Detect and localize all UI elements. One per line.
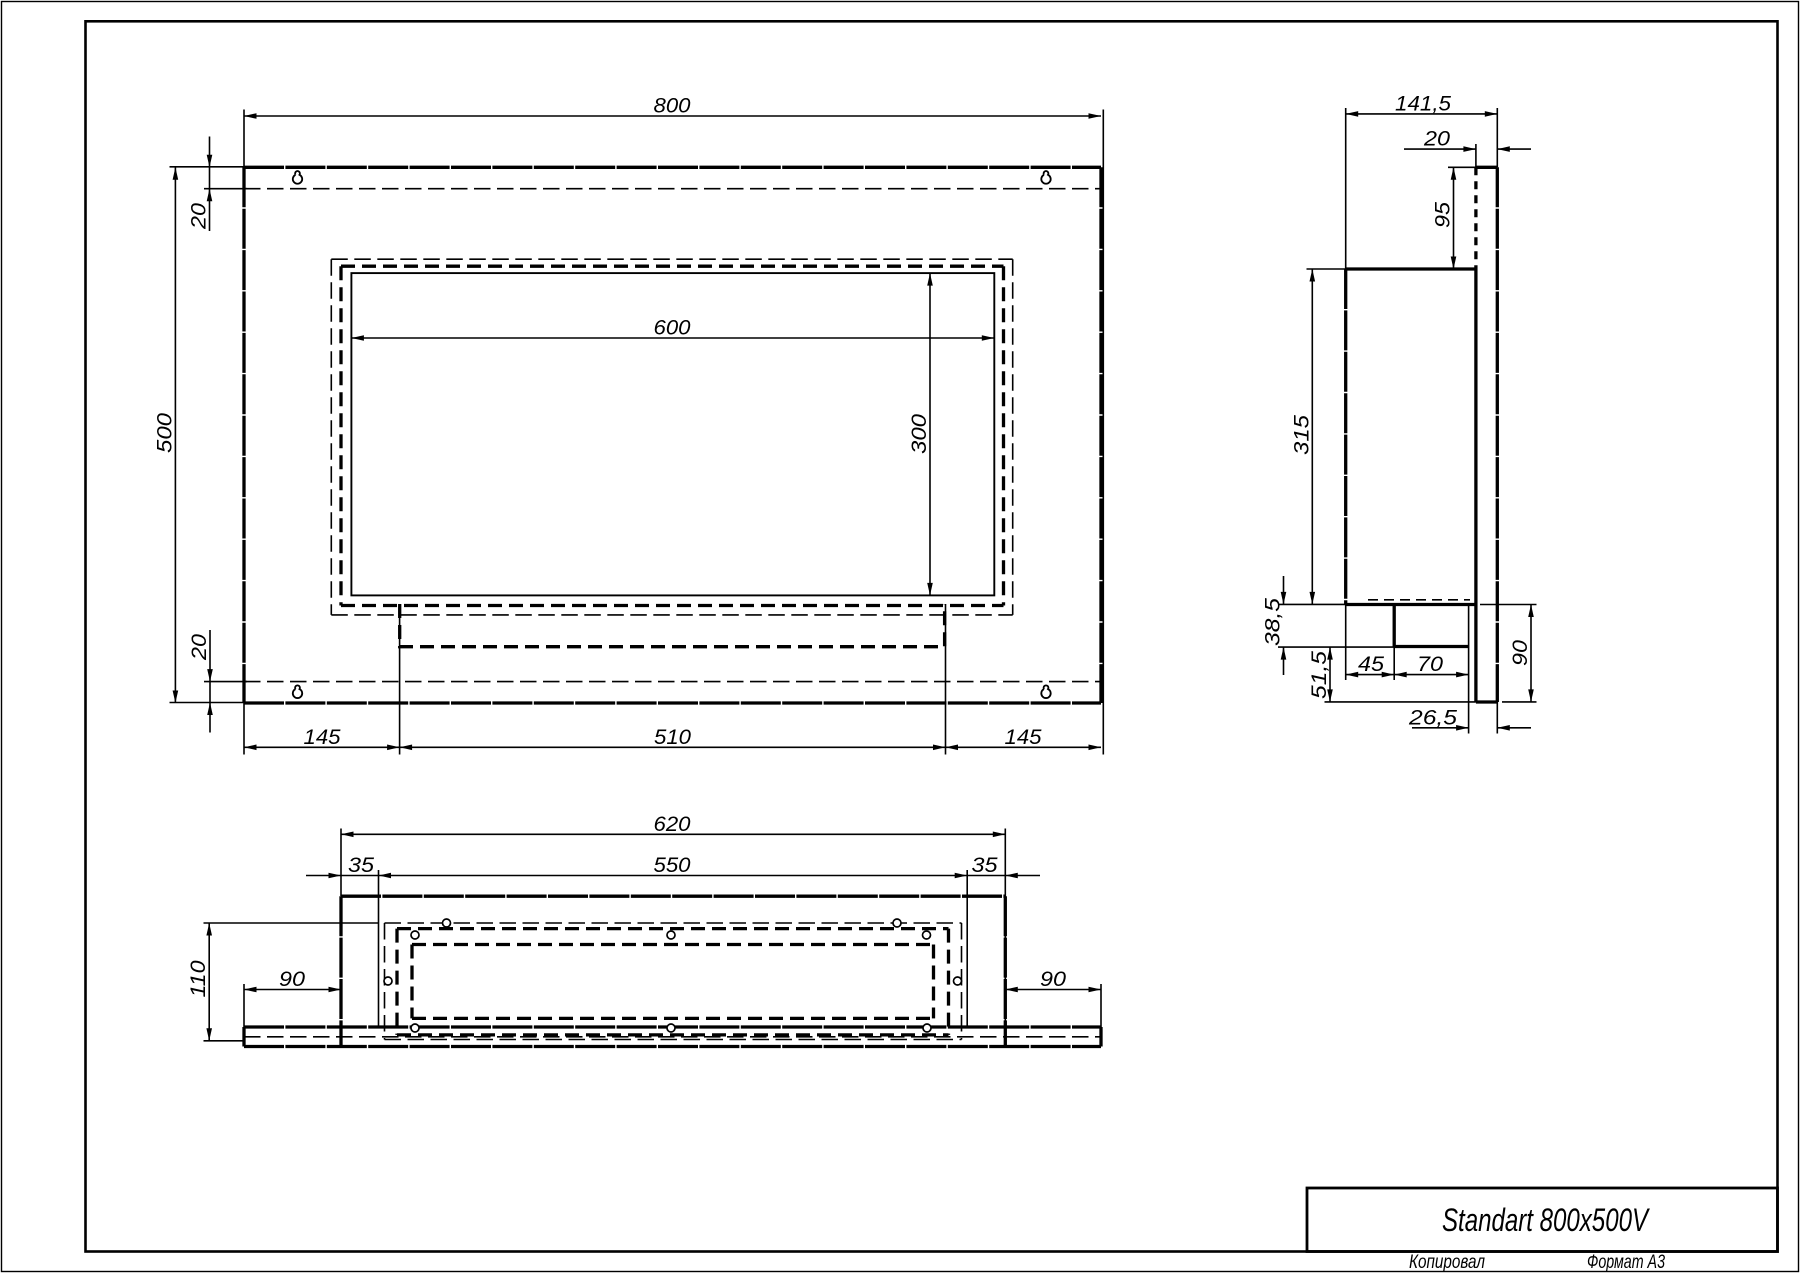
- svg-text:620: 620: [654, 812, 691, 836]
- svg-text:51,5: 51,5: [1307, 650, 1331, 699]
- svg-text:800: 800: [654, 94, 691, 118]
- svg-text:20: 20: [187, 203, 211, 230]
- svg-text:70: 70: [1417, 652, 1443, 676]
- svg-text:Копировал: Копировал: [1409, 1252, 1485, 1273]
- svg-text:Standart 800x500V: Standart 800x500V: [1442, 1202, 1650, 1238]
- svg-text:500: 500: [152, 413, 176, 453]
- svg-text:600: 600: [654, 316, 691, 340]
- svg-text:90: 90: [1040, 967, 1066, 991]
- svg-text:Формат А3: Формат А3: [1587, 1252, 1665, 1273]
- svg-text:35: 35: [348, 853, 375, 877]
- svg-text:90: 90: [1508, 640, 1532, 666]
- svg-text:45: 45: [1358, 652, 1385, 676]
- svg-text:110: 110: [186, 960, 210, 997]
- svg-text:510: 510: [654, 725, 691, 749]
- svg-text:315: 315: [1289, 414, 1313, 455]
- svg-text:300: 300: [907, 414, 931, 454]
- svg-text:145: 145: [1005, 725, 1043, 749]
- svg-text:20: 20: [187, 634, 211, 661]
- svg-text:20: 20: [1423, 127, 1450, 151]
- svg-text:141,5: 141,5: [1395, 91, 1452, 115]
- svg-text:550: 550: [654, 853, 691, 877]
- svg-text:35: 35: [972, 853, 999, 877]
- svg-text:145: 145: [304, 725, 342, 749]
- svg-text:95: 95: [1431, 201, 1455, 228]
- svg-text:90: 90: [279, 967, 305, 991]
- svg-text:26,5: 26,5: [1408, 705, 1458, 729]
